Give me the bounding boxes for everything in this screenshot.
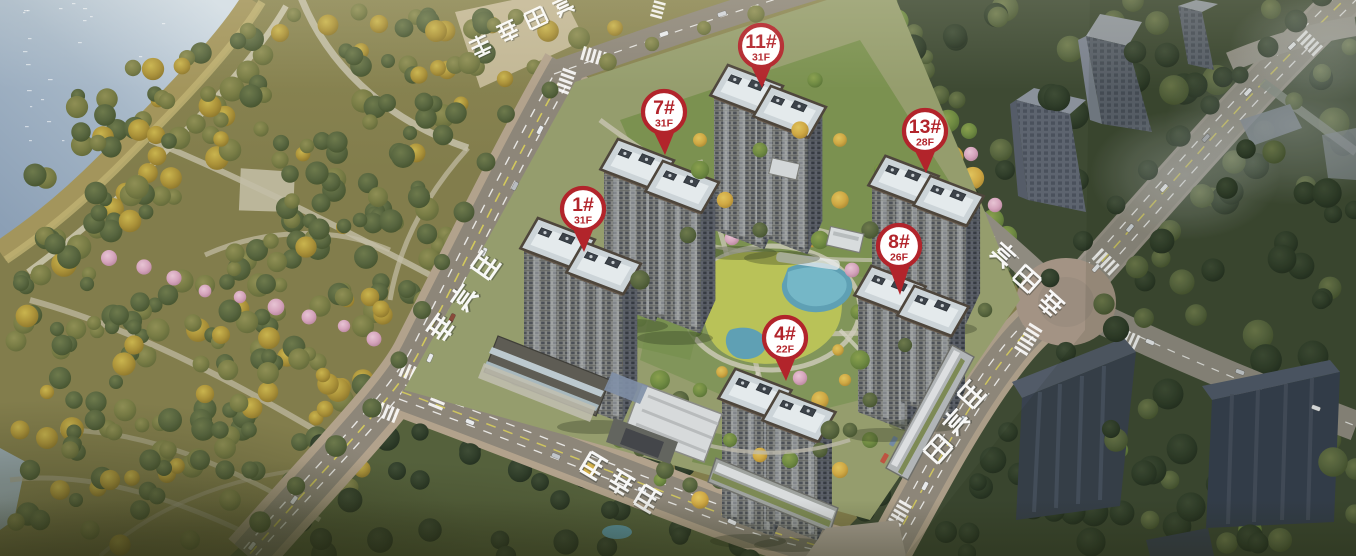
svg-text:26F: 26F (890, 252, 909, 264)
svg-text:22F: 22F (776, 344, 795, 356)
svg-text:4#: 4# (774, 323, 796, 345)
svg-text:8#: 8# (888, 231, 910, 253)
svg-text:31F: 31F (655, 118, 674, 130)
svg-text:28F: 28F (916, 137, 935, 149)
svg-text:1#: 1# (572, 194, 594, 216)
svg-text:13#: 13# (909, 116, 942, 138)
svg-text:31F: 31F (574, 215, 593, 227)
svg-text:7#: 7# (653, 97, 675, 119)
